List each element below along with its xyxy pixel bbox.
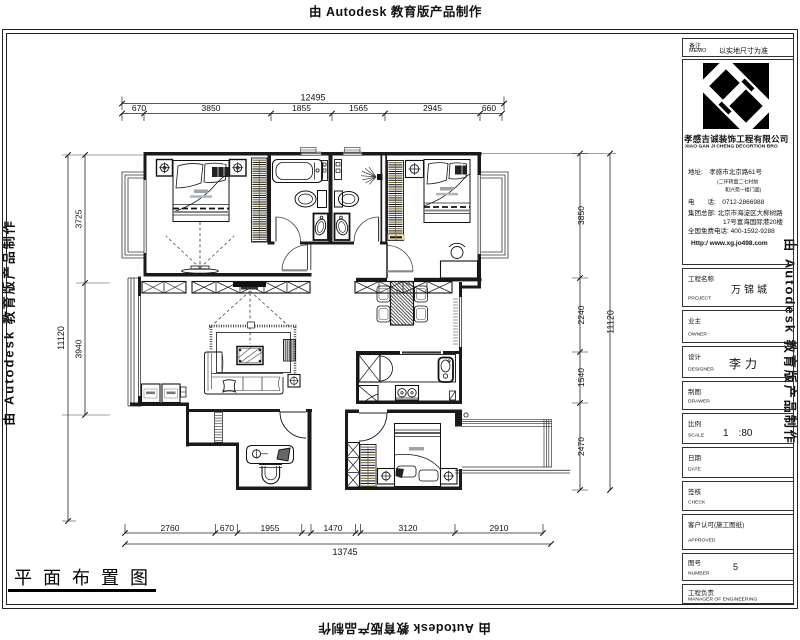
svg-text:13745: 13745 xyxy=(332,547,357,557)
svg-text:660: 660 xyxy=(482,103,496,113)
svg-text:1855: 1855 xyxy=(292,103,311,113)
svg-text:3940: 3940 xyxy=(74,339,84,358)
svg-text:12495: 12495 xyxy=(300,93,325,103)
svg-text:2240: 2240 xyxy=(576,305,586,324)
svg-text:2910: 2910 xyxy=(490,523,509,533)
svg-text:11120: 11120 xyxy=(606,310,616,334)
svg-text:3850: 3850 xyxy=(202,103,221,113)
svg-text:1470: 1470 xyxy=(324,523,343,533)
svg-text:2470: 2470 xyxy=(576,437,586,456)
svg-text:2760: 2760 xyxy=(161,523,180,533)
svg-text:3120: 3120 xyxy=(399,523,418,533)
svg-text:2945: 2945 xyxy=(423,103,442,113)
svg-text:1955: 1955 xyxy=(261,523,280,533)
svg-text:1540: 1540 xyxy=(576,368,586,387)
svg-text:3850: 3850 xyxy=(576,206,586,225)
svg-text:1565: 1565 xyxy=(349,103,368,113)
svg-text:3725: 3725 xyxy=(74,209,84,228)
svg-text:11120: 11120 xyxy=(56,326,66,350)
svg-text:670: 670 xyxy=(220,523,234,533)
svg-text:670: 670 xyxy=(132,103,146,113)
